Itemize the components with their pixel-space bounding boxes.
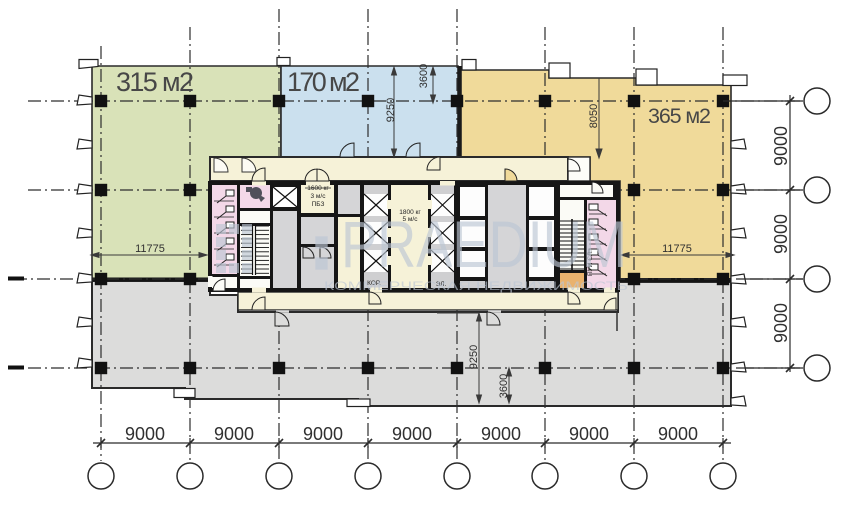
svg-text:315 м2: 315 м2 — [116, 67, 194, 97]
svg-text:9250: 9250 — [385, 98, 397, 122]
svg-text:9000: 9000 — [771, 126, 791, 166]
svg-text:9000: 9000 — [214, 424, 254, 444]
svg-text:1600 кг: 1600 кг — [307, 185, 329, 192]
svg-text:8050: 8050 — [588, 104, 600, 128]
svg-text:PRAEDIUM: PRAEDIUM — [341, 207, 627, 281]
svg-text:365 м2: 365 м2 — [648, 104, 711, 128]
svg-text:9250: 9250 — [468, 345, 480, 369]
svg-text:9000: 9000 — [392, 424, 432, 444]
svg-text:3600: 3600 — [498, 374, 510, 398]
svg-text:9000: 9000 — [125, 424, 165, 444]
svg-text:170 м2: 170 м2 — [287, 67, 360, 97]
svg-text:9000: 9000 — [303, 424, 343, 444]
svg-text:9000: 9000 — [569, 424, 609, 444]
svg-text:КОММЕРЧЕСКАЯ НЕДВИЖИМОСТЬ: КОММЕРЧЕСКАЯ НЕДВИЖИМОСТЬ — [324, 279, 628, 293]
svg-text:9000: 9000 — [658, 424, 698, 444]
svg-text:ПБЗ: ПБЗ — [312, 201, 325, 208]
svg-text:11775: 11775 — [662, 243, 692, 255]
svg-text:11775: 11775 — [135, 243, 165, 255]
svg-text:9000: 9000 — [771, 303, 791, 343]
svg-text:3 м/с: 3 м/с — [311, 193, 327, 200]
svg-text:3600: 3600 — [418, 64, 430, 88]
svg-text:9000: 9000 — [481, 424, 521, 444]
svg-text:9000: 9000 — [771, 214, 791, 254]
